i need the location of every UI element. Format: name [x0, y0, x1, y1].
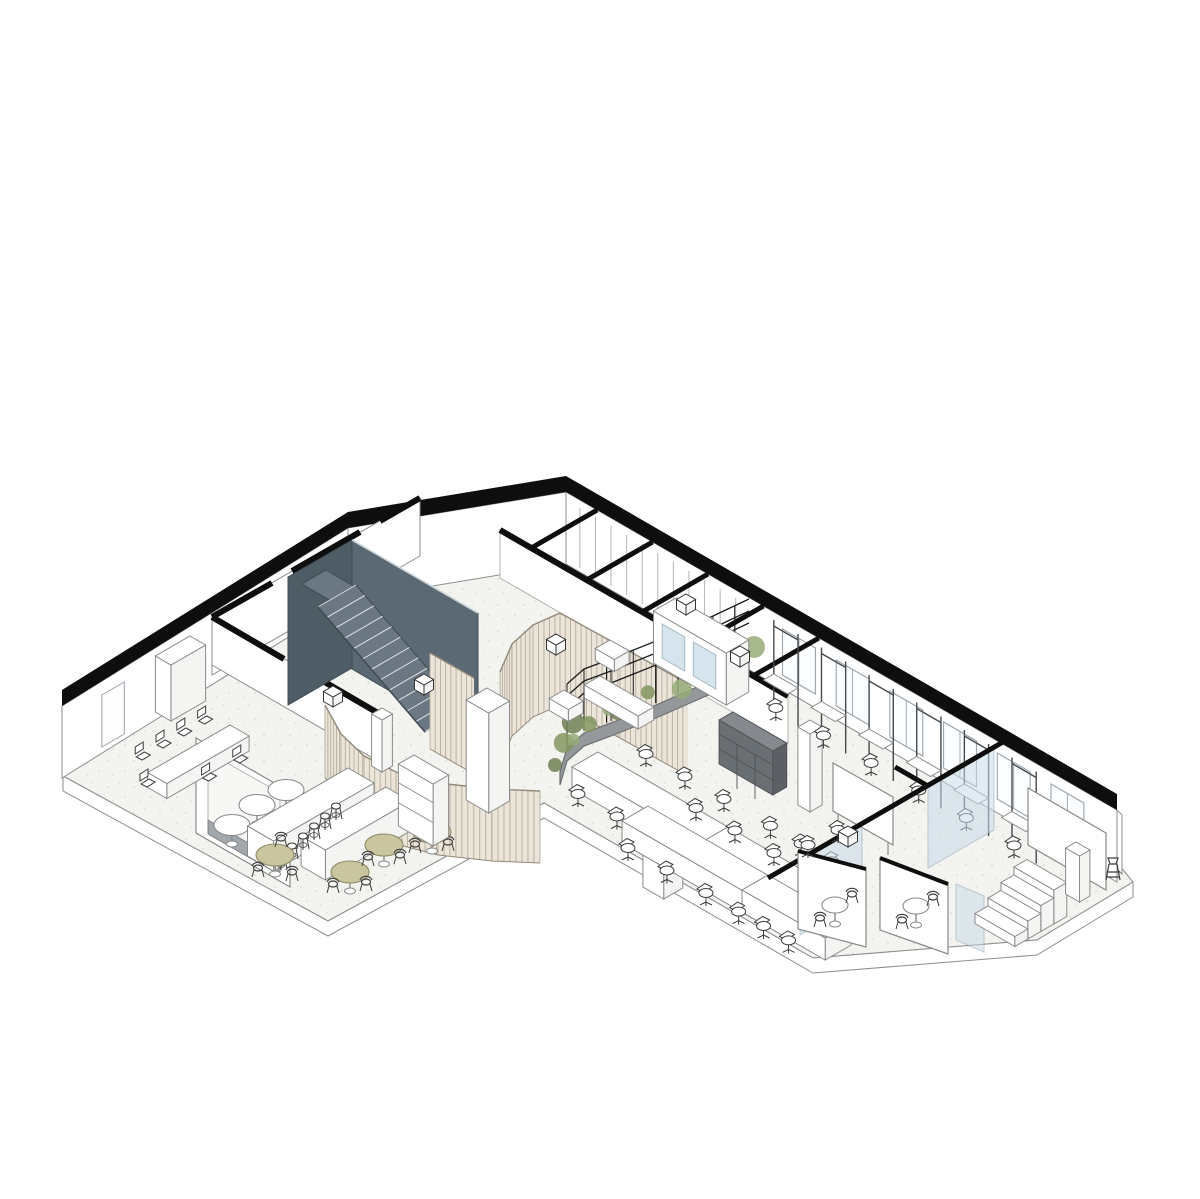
task-chair-part	[757, 922, 771, 931]
plant	[641, 685, 655, 699]
task-chair-part	[678, 772, 692, 781]
task-chair-part	[767, 849, 781, 858]
task-chair-part	[639, 750, 653, 759]
storage-cubby-part	[773, 743, 787, 795]
cafe-table-part	[427, 848, 438, 854]
task-chair-part	[1007, 841, 1021, 850]
task-chair-part	[621, 844, 635, 853]
wall-pier-part	[372, 714, 382, 772]
task-chair-part	[732, 907, 746, 916]
task-chair-part	[728, 826, 742, 835]
round-meeting-table-part	[911, 922, 922, 928]
wall-pier	[372, 708, 393, 772]
bistro-table-part	[227, 841, 238, 847]
task-chair-part	[717, 795, 731, 804]
task-chair-part	[763, 821, 777, 830]
wall-cabinet-part	[155, 656, 171, 721]
task-chair-part	[689, 804, 703, 813]
bar-stool-part	[299, 833, 308, 839]
column-part	[466, 700, 489, 813]
task-chair-part	[660, 866, 674, 875]
bar-stool-part	[310, 823, 319, 829]
workshop-cabinet-part	[1080, 850, 1090, 902]
bar-stool-part	[321, 813, 330, 819]
task-chair-part	[816, 731, 830, 740]
axonometric-office-drawing	[0, 0, 1200, 1199]
cafe-table-part	[379, 861, 390, 867]
plant	[581, 716, 597, 732]
right-end-wall-sliver	[1117, 810, 1122, 874]
task-chair-part	[801, 841, 815, 850]
bookshelf-part	[433, 775, 449, 846]
column-part	[798, 727, 810, 812]
column-part	[489, 701, 510, 813]
workshop-cabinet	[1066, 842, 1090, 902]
round-meeting-table-part	[822, 897, 848, 913]
task-chair-part	[864, 759, 878, 768]
task-chair-part	[699, 889, 713, 898]
bistro-table-part	[239, 795, 275, 816]
column	[466, 688, 509, 813]
task-chair-part	[769, 704, 783, 713]
round-meeting-table-part	[830, 921, 841, 927]
task-chair-part	[571, 790, 585, 799]
cafe-table-part	[270, 871, 281, 877]
task-chair-part	[610, 812, 624, 821]
round-meeting-table-part	[903, 898, 929, 914]
wall-pier-part	[382, 714, 392, 772]
plant	[548, 758, 562, 772]
workshop-cabinet-part	[1066, 848, 1080, 902]
plant	[568, 734, 580, 746]
cafe-table-part	[345, 888, 356, 894]
task-chair-part	[782, 936, 796, 945]
floor-plan-svg	[0, 0, 1200, 1199]
bar-stool-part	[332, 803, 341, 809]
bistro-table-part	[214, 815, 250, 836]
